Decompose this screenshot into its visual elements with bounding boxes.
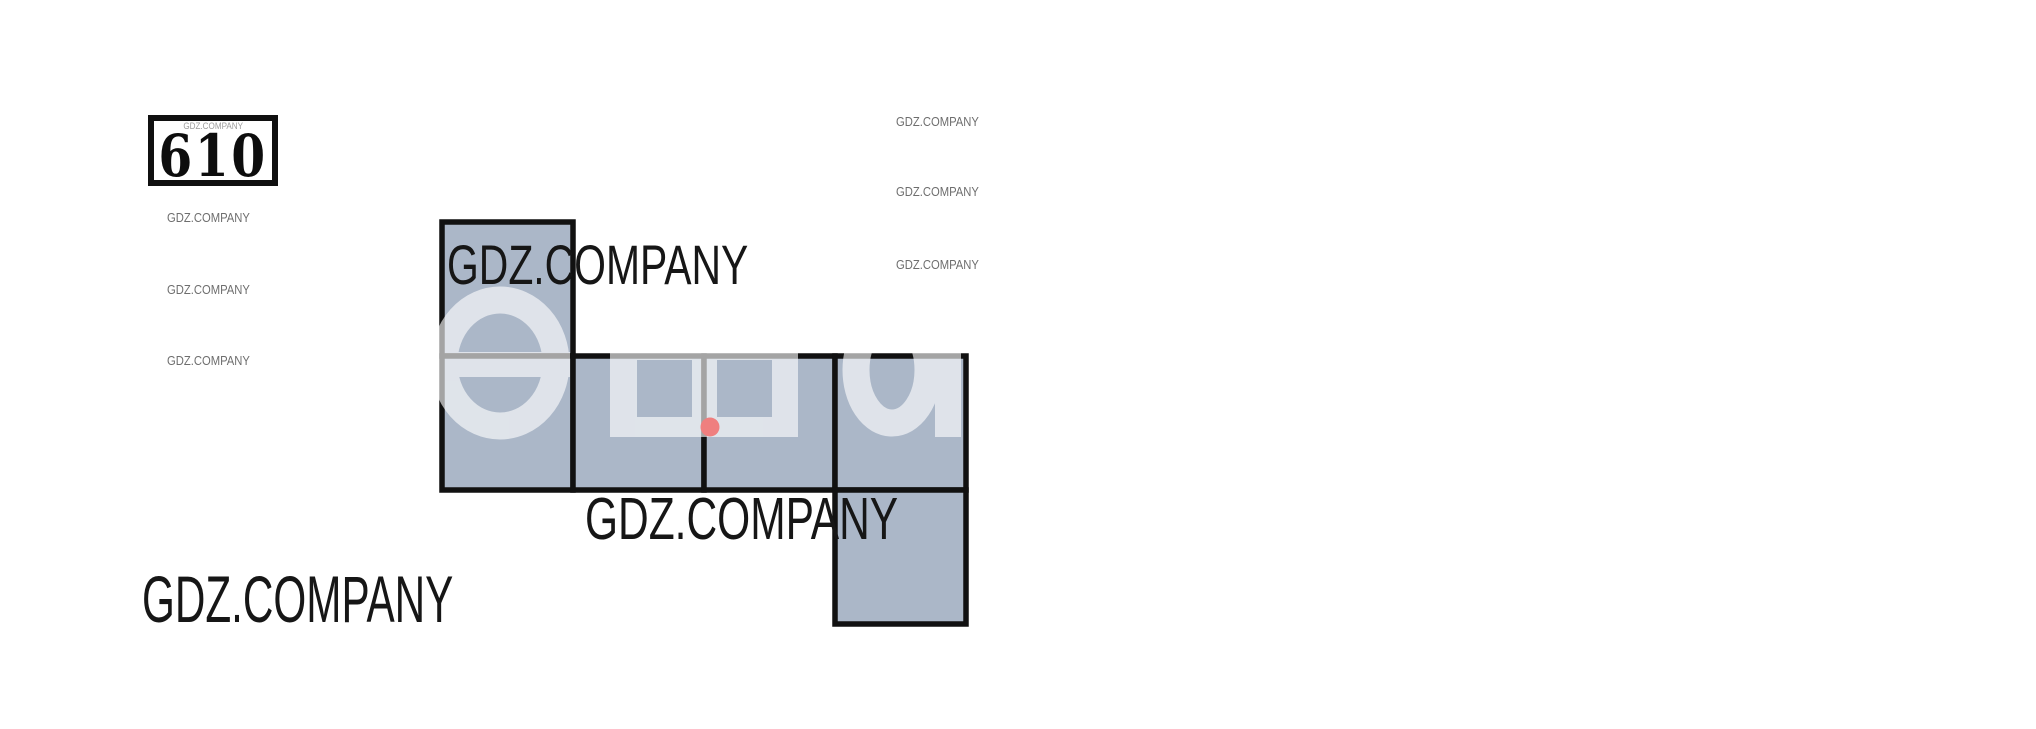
watermark-small-left-1: GDZ.COMPANY — [167, 212, 250, 225]
watermark-small-right-1: GDZ.COMPANY — [896, 116, 979, 129]
watermark-small-left-2: GDZ.COMPANY — [167, 284, 250, 297]
watermark-small-left-3: GDZ.COMPANY — [167, 355, 250, 368]
watermark-large-middle: GDZ.COMPANY — [585, 490, 898, 549]
marked-point — [701, 418, 720, 437]
overlay-letter-shape-1 — [436, 352, 570, 377]
watermark-small-right-3: GDZ.COMPANY — [896, 259, 979, 272]
problem-number-box: GDZ.COMPANY 610 — [148, 115, 278, 186]
watermark-small-right-2: GDZ.COMPANY — [896, 186, 979, 199]
watermark-large-bottom-left: GDZ.COMPANY — [142, 566, 453, 632]
page: GDZ.COMPANY 610 GDZ.COMPANY GDZ.COMPANY … — [0, 0, 2036, 729]
problem-number: 610 — [158, 131, 267, 182]
overlay-letter-shape-4 — [935, 298, 961, 437]
watermark-large-top: GDZ.COMPANY — [447, 237, 748, 293]
